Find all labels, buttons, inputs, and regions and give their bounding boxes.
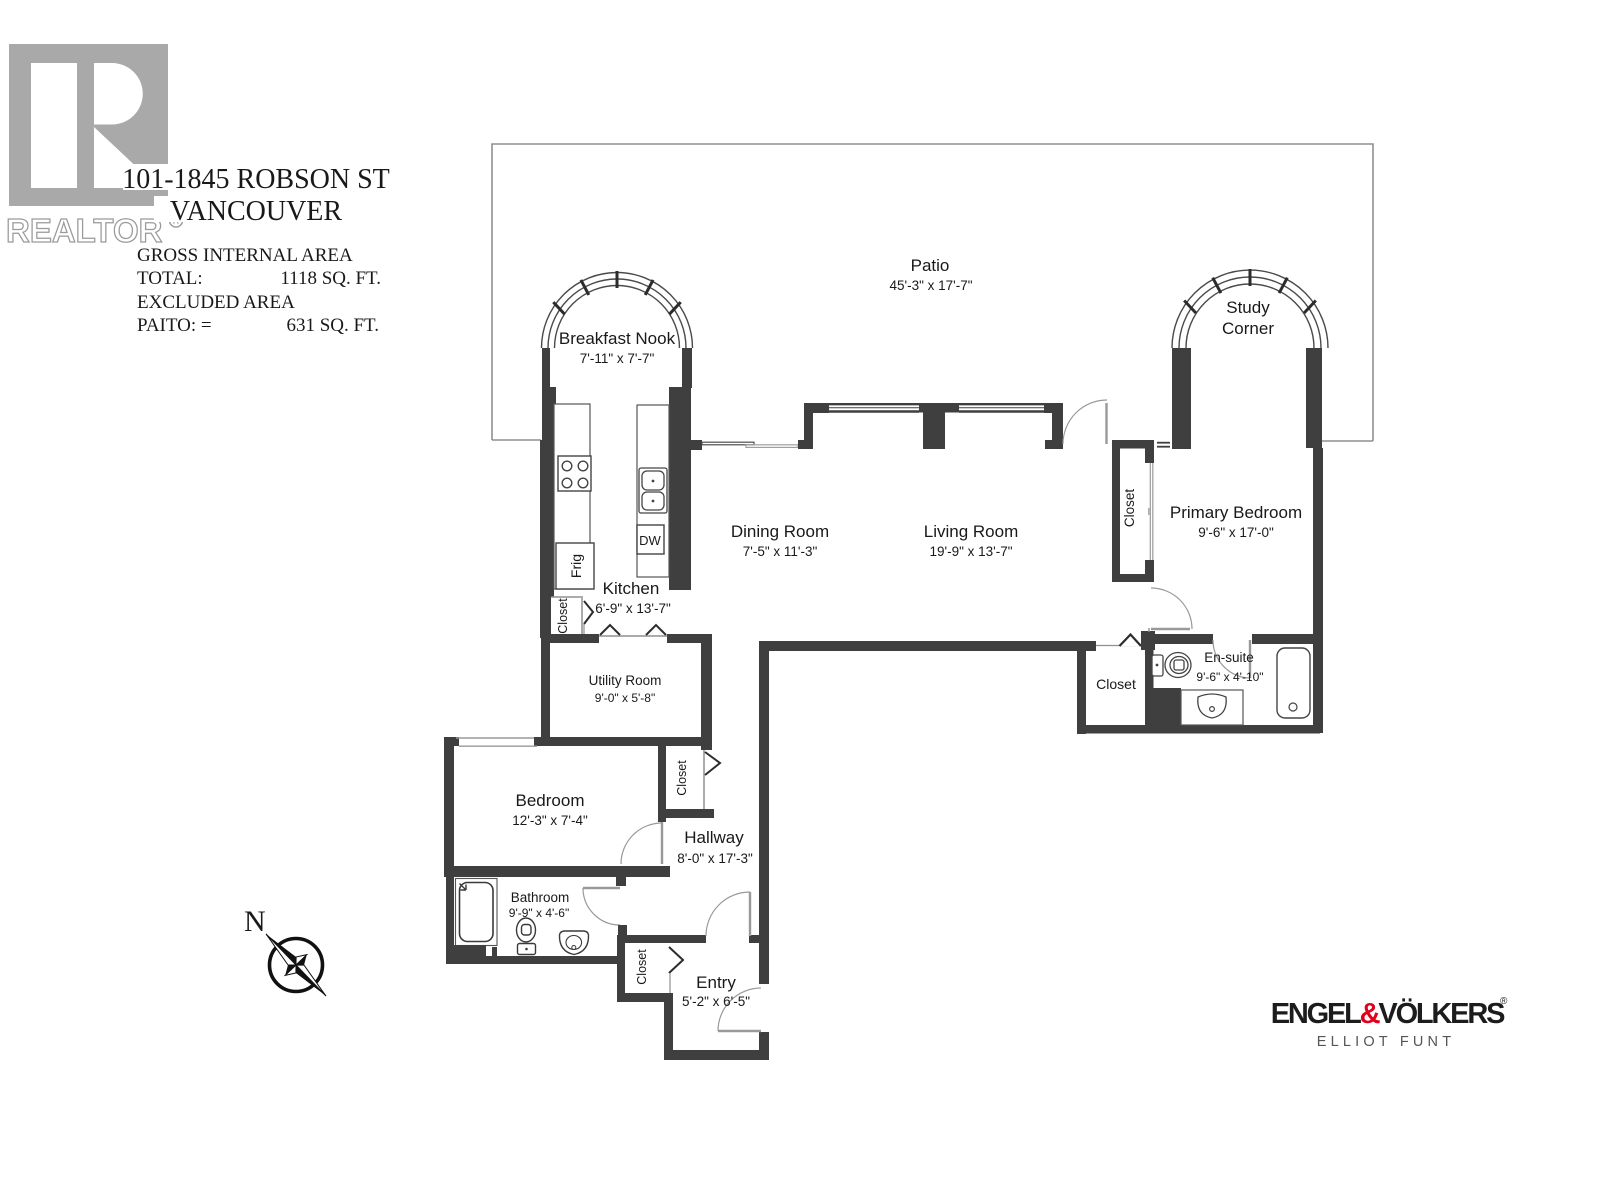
svg-text:631 SQ. FT.: 631 SQ. FT. <box>286 315 379 336</box>
svg-text:Closet: Closet <box>1122 489 1137 528</box>
svg-text:REALTOR: REALTOR <box>6 212 163 249</box>
svg-text:VANCOUVER: VANCOUVER <box>170 196 342 227</box>
svg-text:TOTAL:: TOTAL: <box>137 268 203 289</box>
svg-text:Corner: Corner <box>1222 319 1274 338</box>
svg-text:ENGEL&VÖLKERS: ENGEL&VÖLKERS <box>1271 997 1505 1030</box>
svg-text:Entry: Entry <box>696 973 736 992</box>
svg-text:Frig: Frig <box>568 554 584 578</box>
svg-text:Patio: Patio <box>911 256 950 275</box>
svg-text:9'-0" x 5'-8": 9'-0" x 5'-8" <box>595 691 655 705</box>
svg-text:101-1845 ROBSON ST: 101-1845 ROBSON ST <box>122 164 390 195</box>
svg-text:45'-3" x 17'-7": 45'-3" x 17'-7" <box>889 278 972 293</box>
svg-text:ELLIOT FUNT: ELLIOT FUNT <box>1317 1034 1456 1050</box>
svg-text:PAITO: =: PAITO: = <box>137 315 212 336</box>
svg-text:Kitchen: Kitchen <box>603 579 660 598</box>
svg-text:®: ® <box>1500 996 1508 1007</box>
svg-text:9'-9" x 4'-6": 9'-9" x 4'-6" <box>509 906 569 920</box>
svg-text:5'-2" x 6'-5": 5'-2" x 6'-5" <box>682 994 750 1009</box>
svg-text:Closet: Closet <box>1096 676 1136 692</box>
svg-text:9'-6" x 17'-0": 9'-6" x 17'-0" <box>1198 525 1274 540</box>
svg-text:9'-6" x 4'-10": 9'-6" x 4'-10" <box>1196 670 1263 684</box>
svg-text:Study: Study <box>1226 298 1270 317</box>
svg-text:Hallway: Hallway <box>684 828 744 847</box>
svg-text:En-suite: En-suite <box>1204 650 1254 665</box>
svg-text:Living Room: Living Room <box>924 522 1019 541</box>
svg-text:DW: DW <box>639 533 661 548</box>
svg-text:Bathroom: Bathroom <box>511 890 570 905</box>
svg-text:EXCLUDED AREA: EXCLUDED AREA <box>137 292 295 313</box>
svg-text:7'-11" x 7'-7": 7'-11" x 7'-7" <box>580 351 655 366</box>
svg-text:8'-0" x 17'-3": 8'-0" x 17'-3" <box>677 851 753 866</box>
svg-text:Closet: Closet <box>675 760 689 796</box>
svg-text:6'-9" x 13'-7": 6'-9" x 13'-7" <box>595 601 671 616</box>
svg-text:19'-9" x 13'-7": 19'-9" x 13'-7" <box>929 544 1012 559</box>
svg-text:1118 SQ. FT.: 1118 SQ. FT. <box>280 268 381 289</box>
svg-text:Bedroom: Bedroom <box>516 791 585 810</box>
svg-text:Closet: Closet <box>556 598 570 634</box>
svg-text:12'-3" x 7'-4": 12'-3" x 7'-4" <box>512 813 588 828</box>
svg-text:GROSS INTERNAL AREA: GROSS INTERNAL AREA <box>137 245 353 266</box>
svg-text:Breakfast Nook: Breakfast Nook <box>559 329 676 348</box>
svg-text:N: N <box>244 905 266 938</box>
svg-text:Primary Bedroom: Primary Bedroom <box>1170 503 1302 522</box>
svg-text:Dining Room: Dining Room <box>731 522 829 541</box>
svg-text:Utility Room: Utility Room <box>589 673 662 688</box>
svg-text:Closet: Closet <box>635 949 649 985</box>
svg-text:7'-5" x 11'-3": 7'-5" x 11'-3" <box>743 544 818 559</box>
